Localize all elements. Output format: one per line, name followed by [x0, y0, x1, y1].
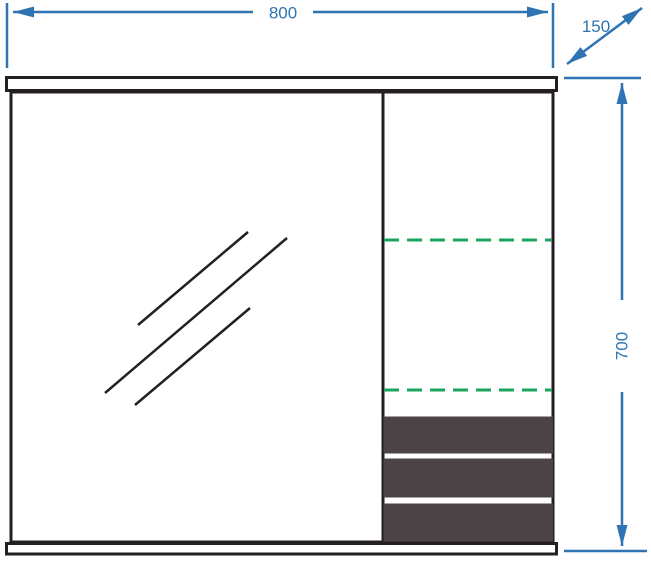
height-dimension-label: 700 [613, 332, 632, 360]
cabinet-bottom-panel [7, 544, 557, 555]
width-dimension-label: 800 [269, 4, 297, 23]
depth-dimension-label: 150 [582, 17, 610, 36]
width-dimension: 800 [7, 3, 553, 68]
drawer-stack [384, 417, 554, 542]
depth-dimension: 150 [567, 8, 642, 64]
drawer-front-1 [384, 417, 554, 454]
drawing-canvas: 800 150 700 [0, 0, 651, 561]
cabinet-technical-drawing: 800 150 700 [0, 0, 651, 561]
cabinet-top-panel [7, 78, 557, 91]
drawer-front-3 [384, 504, 554, 542]
height-dimension: 700 [564, 78, 647, 551]
cabinet [7, 78, 557, 555]
drawer-front-2 [384, 459, 554, 498]
